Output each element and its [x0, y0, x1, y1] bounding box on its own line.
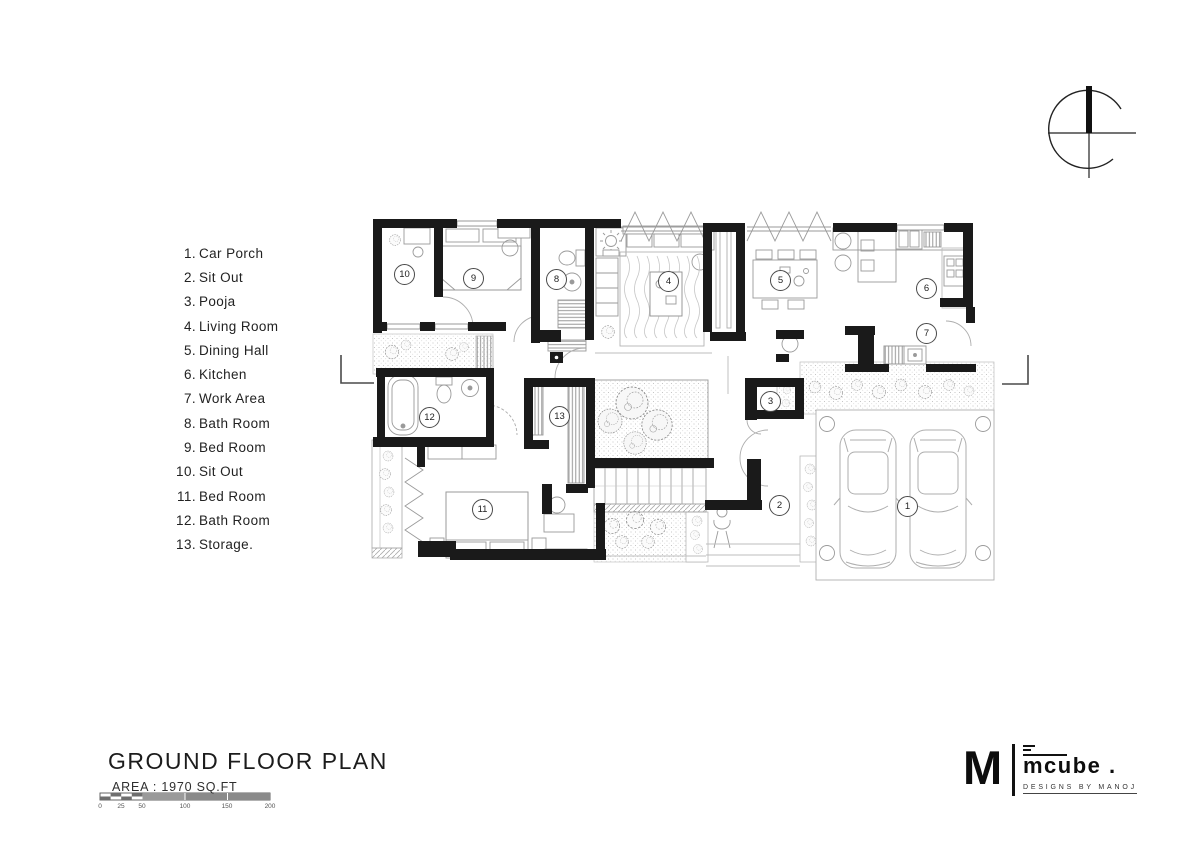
legend-name: Living Room [196, 319, 278, 334]
scale-tick-label: 25 [117, 803, 124, 810]
legend-number: 13. [148, 537, 196, 552]
legend-item: 5.Dining Hall [148, 338, 278, 362]
room-tag-pooja: 3 [760, 391, 781, 412]
legend-number: 11. [148, 489, 196, 504]
legend-number: 6. [148, 367, 196, 382]
legend-number: 5. [148, 343, 196, 358]
car-porch [816, 410, 994, 580]
logo-accent-line [1023, 749, 1031, 751]
room-tag-dining-hall: 5 [770, 270, 791, 291]
room-tag-sit-out-rear: 10 [394, 264, 415, 285]
floor-plan-sheet: 1.Car Porch 2.Sit Out 3.Pooja 4.Living R… [0, 0, 1200, 849]
room-tag-work-area: 7 [916, 323, 937, 344]
area-label: AREA : 1970 SQ.FT [112, 780, 388, 794]
legend-name: Work Area [196, 391, 265, 406]
scale-bar [100, 793, 270, 800]
staircase [594, 468, 706, 512]
legend-name: Bath Room [196, 416, 270, 431]
logo-monogram: M [963, 740, 1002, 796]
legend-item: 6.Kitchen [148, 362, 278, 386]
legend-item: 13.Storage. [148, 533, 278, 557]
legend-item: 11.Bed Room [148, 484, 278, 508]
legend-item: 8.Bath Room [148, 411, 278, 435]
legend-name: Car Porch [196, 246, 263, 261]
room-tag-bath-room-2: 12 [419, 407, 440, 428]
legend-item: 7.Work Area [148, 387, 278, 411]
legend-item: 9.Bed Room [148, 435, 278, 459]
column-dot [555, 356, 559, 360]
legend-name: Storage. [196, 537, 253, 552]
page-title: GROUND FLOOR PLAN [108, 748, 388, 775]
title-block: GROUND FLOOR PLAN AREA : 1970 SQ.FT [108, 748, 388, 794]
legend-item: 2.Sit Out [148, 265, 278, 289]
scale-tick-label: 150 [222, 803, 233, 810]
legend-item: 4.Living Room [148, 314, 278, 338]
logo-divider [1012, 744, 1015, 796]
room-tag-bed-room-2: 11 [472, 499, 493, 520]
room-tag-car-porch: 1 [897, 496, 918, 517]
scale-tick-label: 100 [180, 803, 191, 810]
legend-number: 1. [148, 246, 196, 261]
room-legend: 1.Car Porch 2.Sit Out 3.Pooja 4.Living R… [148, 241, 278, 557]
legend-number: 10. [148, 464, 196, 479]
legend-name: Bath Room [196, 513, 270, 528]
north-arrow-icon [1048, 86, 1136, 178]
legend-name: Kitchen [196, 367, 247, 382]
legend-item: 1.Car Porch [148, 241, 278, 265]
room-tag-kitchen: 6 [916, 278, 937, 299]
room-tag-bed-room-1: 9 [463, 268, 484, 289]
scale-tick-label: 50 [138, 803, 145, 810]
logo-accent-line [1023, 745, 1035, 747]
logo-tagline: DESIGNS BY MANOJ [1023, 784, 1137, 794]
scale-tick-label: 0 [98, 803, 102, 810]
room-tag-storage: 13 [549, 406, 570, 427]
legend-number: 8. [148, 416, 196, 431]
room-tag-living-room: 4 [658, 271, 679, 292]
scale-tick-label: 200 [265, 803, 276, 810]
legend-name: Sit Out [196, 270, 243, 285]
legend-number: 12. [148, 513, 196, 528]
legend-name: Bed Room [196, 440, 266, 455]
logo-brand-name: mcube . [1023, 753, 1117, 779]
legend-name: Bed Room [196, 489, 266, 504]
legend-item: 12.Bath Room [148, 508, 278, 532]
legend-number: 3. [148, 294, 196, 309]
legend-number: 7. [148, 391, 196, 406]
brand-logo: M mcube . DESIGNS BY MANOJ [963, 740, 1173, 802]
legend-name: Dining Hall [196, 343, 269, 358]
legend-item: 10.Sit Out [148, 460, 278, 484]
room-tag-sit-out-front: 2 [769, 495, 790, 516]
legend-number: 9. [148, 440, 196, 455]
legend-number: 4. [148, 319, 196, 334]
room-tag-bath-room-1: 8 [546, 269, 567, 290]
legend-number: 2. [148, 270, 196, 285]
car-left [834, 430, 902, 568]
legend-item: 3.Pooja [148, 290, 278, 314]
legend-name: Pooja [196, 294, 236, 309]
legend-name: Sit Out [196, 464, 243, 479]
